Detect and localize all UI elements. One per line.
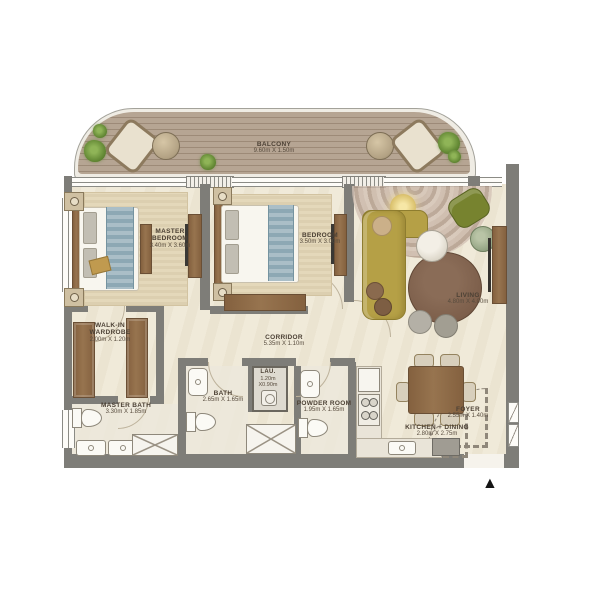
bedroom-dims: 3.50m X 3.00m — [294, 239, 346, 246]
entrance-opening — [464, 454, 504, 468]
plant-icon — [200, 154, 216, 170]
bed-runner — [268, 205, 294, 281]
sofa-cushion — [374, 298, 392, 316]
master-bedroom-dims: 3.40m X 3.60m — [142, 243, 198, 250]
wall-corridor-south — [242, 358, 296, 366]
washer-icon — [261, 390, 277, 406]
wardrobe-name: WALK-IN WARDROBE — [84, 322, 136, 337]
plant-icon — [84, 140, 106, 162]
kitchen-cabinet — [432, 438, 460, 456]
foyer-closet-door — [508, 424, 519, 447]
balcony-dims: 9.60m X 1.50m — [214, 148, 334, 155]
master-bath-name: MASTER BATH — [88, 402, 164, 409]
balcony-side-table — [366, 132, 394, 160]
nightstand — [213, 187, 232, 205]
powder-label: POWDER ROOM 1.95m X 1.65m — [296, 400, 352, 414]
sofa-cushion — [372, 216, 392, 236]
pillow — [225, 210, 239, 240]
foyer-name: FOYER — [440, 406, 496, 413]
living-label: LIVING 4.80m X 4.00m — [438, 292, 498, 306]
pouf — [408, 310, 432, 334]
powder-name: POWDER ROOM — [296, 400, 352, 407]
toilet — [298, 418, 328, 440]
coffee-table — [416, 230, 448, 262]
kitchen-name: KITCHEN + DINING — [396, 424, 478, 431]
wall-segment — [468, 176, 480, 186]
foyer-closet-door — [508, 402, 519, 423]
bath-dims: 2.65m X 1.65m — [196, 397, 250, 404]
wardrobe-dims: 2.00m X 1.20m — [84, 337, 136, 344]
balcony-side-table — [152, 132, 180, 160]
corridor-label: CORRIDOR 5.35m X 1.10m — [244, 334, 324, 348]
bedroom-wardrobe — [224, 294, 306, 311]
living-dims: 4.80m X 4.00m — [438, 299, 498, 306]
pouf — [434, 314, 458, 338]
tv-icon — [488, 238, 491, 292]
plant-icon — [93, 124, 107, 138]
master-bath-dims: 3.30m X 1.85m — [88, 409, 164, 416]
wall-bath-west — [178, 358, 186, 456]
bedroom-label: BEDROOM 3.50m X 3.00m — [294, 232, 346, 246]
nightstand — [64, 288, 84, 307]
laundry-dims: 1.20m X0.90m — [252, 376, 284, 388]
floor-plan: BALCONY 9.60m X 1.50m — [0, 0, 600, 600]
sink — [300, 370, 320, 398]
nightstand — [64, 192, 84, 211]
fridge — [358, 368, 380, 392]
pillow — [225, 244, 239, 274]
dining-chair — [462, 382, 476, 402]
powder-dims: 1.95m X 1.65m — [296, 407, 352, 414]
laundry-name: LAU. — [252, 369, 284, 376]
living-name: LIVING — [438, 292, 498, 299]
kitchen-dims: 2.80m X 2.75m — [396, 431, 478, 438]
laundry-label: LAU. 1.20m X0.90m — [252, 369, 284, 388]
master-bedroom-label: MASTER BEDROOM 3.40m X 3.60m — [142, 228, 198, 249]
entrance-marker-icon: ▲ — [482, 476, 498, 492]
corridor-dims: 5.35m X 1.10m — [244, 341, 324, 348]
bath-label: BATH 2.65m X 1.65m — [196, 390, 250, 404]
bedroom-name: BEDROOM — [294, 232, 346, 239]
foyer-label: FOYER 2.55m X 1.40m — [440, 406, 496, 420]
kitchen-label: KITCHEN + DINING 2.80m X 2.75m — [396, 424, 478, 438]
toilet — [186, 412, 216, 434]
plant-icon — [448, 150, 461, 163]
vanity-sink — [76, 440, 106, 456]
master-bedroom-name: MASTER BEDROOM — [142, 228, 198, 243]
shower — [246, 424, 296, 454]
wardrobe-label: WALK-IN WARDROBE 2.00m X 1.20m — [84, 322, 136, 343]
shower — [132, 434, 178, 456]
foyer-dims: 2.55m X 1.40m — [440, 413, 496, 420]
window — [232, 177, 342, 187]
pillow — [83, 212, 97, 244]
balcony-label: BALCONY 9.60m X 1.50m — [214, 141, 334, 155]
window — [72, 177, 186, 187]
master-bed-runner — [106, 207, 134, 289]
corridor-name: CORRIDOR — [244, 334, 324, 341]
wall-wardrobe-east — [156, 312, 164, 396]
kitchen-sink — [388, 441, 416, 455]
bath-name: BATH — [196, 390, 250, 397]
cooktop — [358, 394, 380, 426]
balcony-name: BALCONY — [214, 141, 334, 148]
master-bath-label: MASTER BATH 3.30m X 1.85m — [88, 402, 164, 416]
